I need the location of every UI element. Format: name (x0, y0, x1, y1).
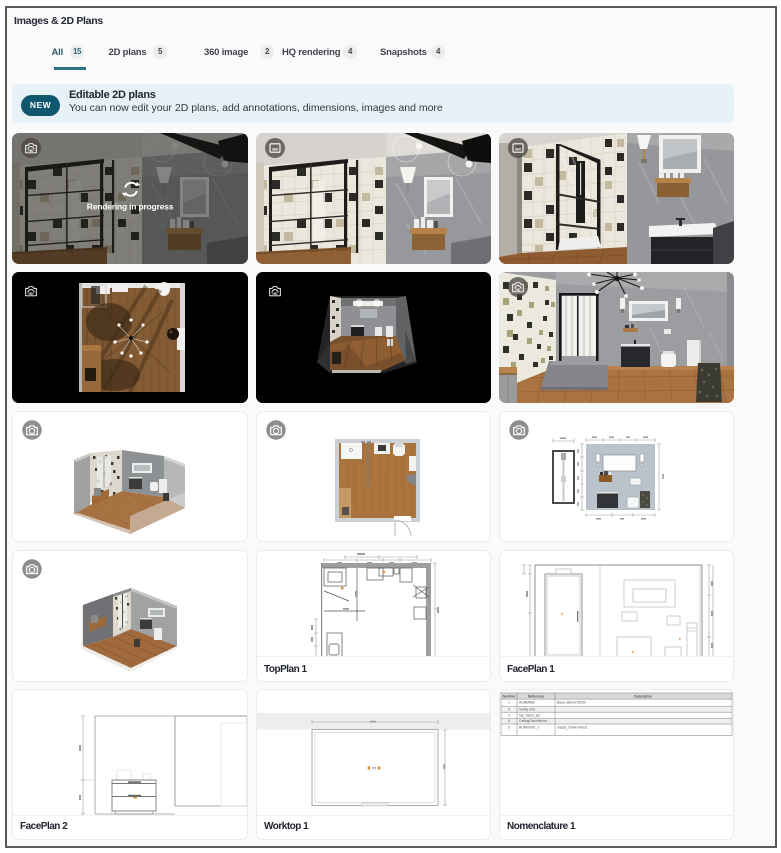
svg-text:tap_basin_set: tap_basin_set (519, 713, 540, 717)
svg-text:macal_20mm Wood: macal_20mm Wood (557, 726, 587, 730)
svg-text:Base cabinet 500m: Base cabinet 500m (557, 701, 586, 705)
svg-text:CeilingDiscofixture: CeilingDiscofixture (519, 719, 547, 723)
svg-text:3: 3 (508, 713, 510, 717)
svg-text:360: 360 (272, 148, 278, 152)
svg-text:Number: Number (503, 694, 517, 698)
svg-text:Description: Description (634, 694, 652, 698)
svg-text:Vanity Unit: Vanity Unit (519, 708, 535, 712)
svg-text:5: 5 (508, 726, 510, 730)
svg-text:2: 2 (508, 708, 510, 712)
svg-text:HD: HD (29, 292, 34, 296)
svg-text:HD: HD (516, 288, 521, 292)
svg-text:HD: HD (29, 149, 34, 153)
svg-text:Reference: Reference (528, 694, 545, 698)
svg-text:Rendering in progress: Rendering in progress (87, 202, 174, 212)
svg-text:BUR00001_2: BUR00001_2 (519, 726, 539, 730)
svg-text:4: 4 (508, 719, 510, 723)
svg-text:1: 1 (508, 701, 510, 705)
svg-text:360: 360 (515, 148, 521, 152)
svg-text:HD: HD (273, 292, 278, 296)
svg-text:AUBM988: AUBM988 (519, 701, 535, 705)
